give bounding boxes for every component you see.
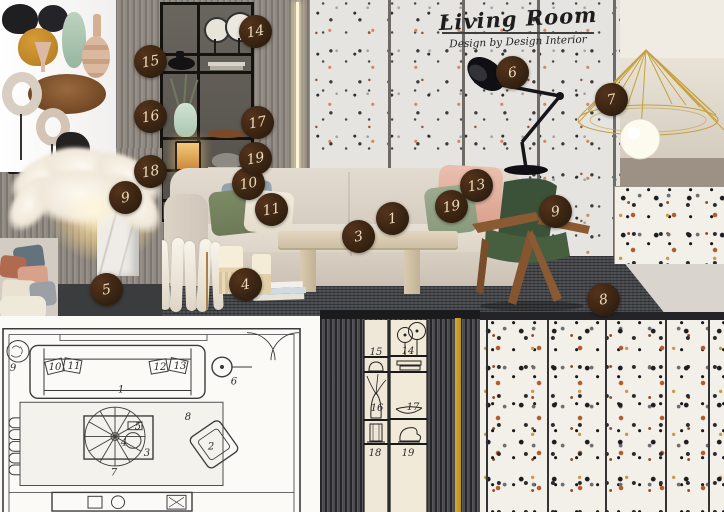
gray-decor-object: [212, 153, 242, 168]
plan-label-pendant: 7: [111, 468, 118, 479]
plan-label-armchair: 2: [207, 441, 214, 452]
page-title: Living Room: [435, 2, 600, 36]
moodboard: Living Room Design by Design Interior: [0, 0, 724, 512]
terrazzo-sample: [614, 186, 724, 268]
floor-plan-drawing: 9 10 11 12 13 1 6 8 5 4 3 2 7: [0, 316, 320, 512]
plan-label-tray: 5: [135, 422, 141, 433]
bottle-vase-neck: [93, 14, 101, 38]
stone-disc-sculpture: [2, 72, 42, 116]
disc-stand: [20, 114, 22, 160]
plan-label-pillow11: 11: [68, 361, 81, 372]
plan-label-coffee-table: 3: [144, 448, 150, 459]
floor-plan-svg: 9 10 11 12 13 1 6 8 5 4 3 2 7: [0, 316, 320, 512]
celadon-vase: [174, 103, 197, 137]
panel-gap-line: [547, 320, 549, 512]
vases-photo: [0, 0, 116, 172]
elevation-svg: 15 14 16 17 18 19: [320, 310, 480, 512]
panel-gap-line: [605, 320, 607, 512]
elev-label-bowl: 17: [407, 402, 420, 413]
plan-label-pillow13: 13: [174, 361, 187, 372]
globe-bulb: [620, 119, 660, 159]
title-byline: Design by Design Interior: [436, 33, 600, 51]
panel-gap-line: [486, 320, 488, 512]
clock-stand: [238, 38, 240, 53]
plan-label-rug: 8: [185, 412, 191, 423]
brass-pole: [206, 252, 208, 310]
panel-gap-line: [665, 320, 667, 512]
elev-label-vase: 15: [370, 347, 383, 358]
plan-label-pillow12: 12: [154, 362, 167, 373]
panel-gap-line: [708, 320, 710, 512]
shelf-board: [163, 137, 251, 140]
coffee-table-leg: [404, 248, 420, 294]
terrazzo-panel-field: [480, 320, 724, 512]
plan-label-pillow10: 10: [49, 362, 62, 373]
elev-label-plant-vase: 16: [371, 403, 384, 414]
elev-label-decor: 19: [402, 448, 415, 459]
black-vase: [168, 57, 195, 70]
blush-gourd-vase: [82, 36, 110, 78]
plan-label-decor: 4: [120, 437, 127, 448]
cushions-photo: [0, 238, 58, 320]
branch: [170, 78, 180, 107]
plan-label-sofa: 1: [118, 385, 124, 396]
wooden-bowl-shelf: [207, 130, 245, 138]
elev-label-clocks: 14: [402, 346, 415, 357]
shelf-book: [210, 66, 243, 70]
terrazzo-panels: [480, 312, 724, 512]
title-block: Living Room Design by Design Interior: [436, 6, 600, 64]
shelf-board: [163, 71, 251, 74]
clock-stand: [214, 39, 216, 53]
plan-label-floor-lamp: 6: [231, 377, 237, 388]
elev-label-lamp: 18: [369, 448, 382, 459]
elevation-drawing: 15 14 16 17 18 19: [320, 310, 480, 512]
green-armchair: [470, 176, 604, 312]
plan-label-plant: 9: [10, 363, 16, 374]
